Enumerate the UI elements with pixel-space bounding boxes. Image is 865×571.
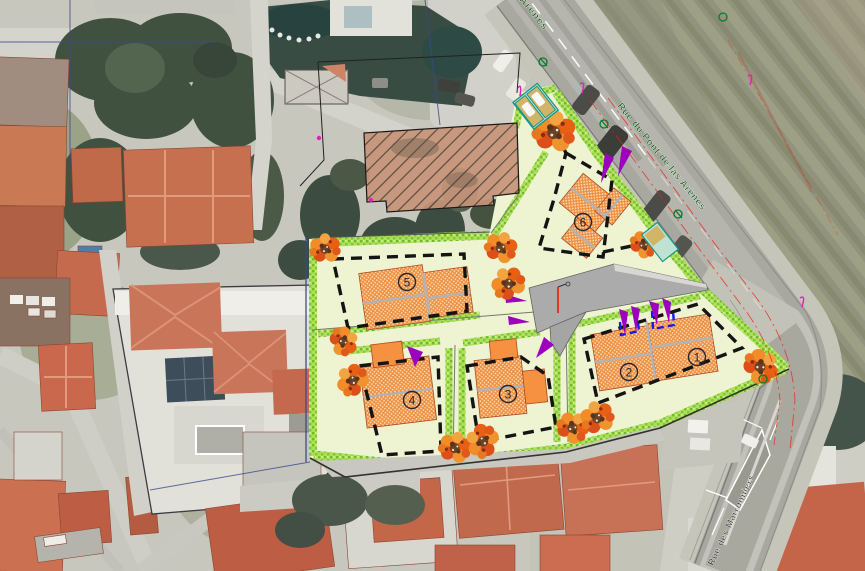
svg-text:1: 1 [694, 351, 701, 365]
svg-text:3: 3 [505, 388, 512, 402]
svg-text:2: 2 [626, 366, 633, 380]
svg-text:4: 4 [409, 394, 416, 408]
svg-text:5: 5 [404, 276, 411, 290]
svg-text:6: 6 [580, 216, 587, 230]
